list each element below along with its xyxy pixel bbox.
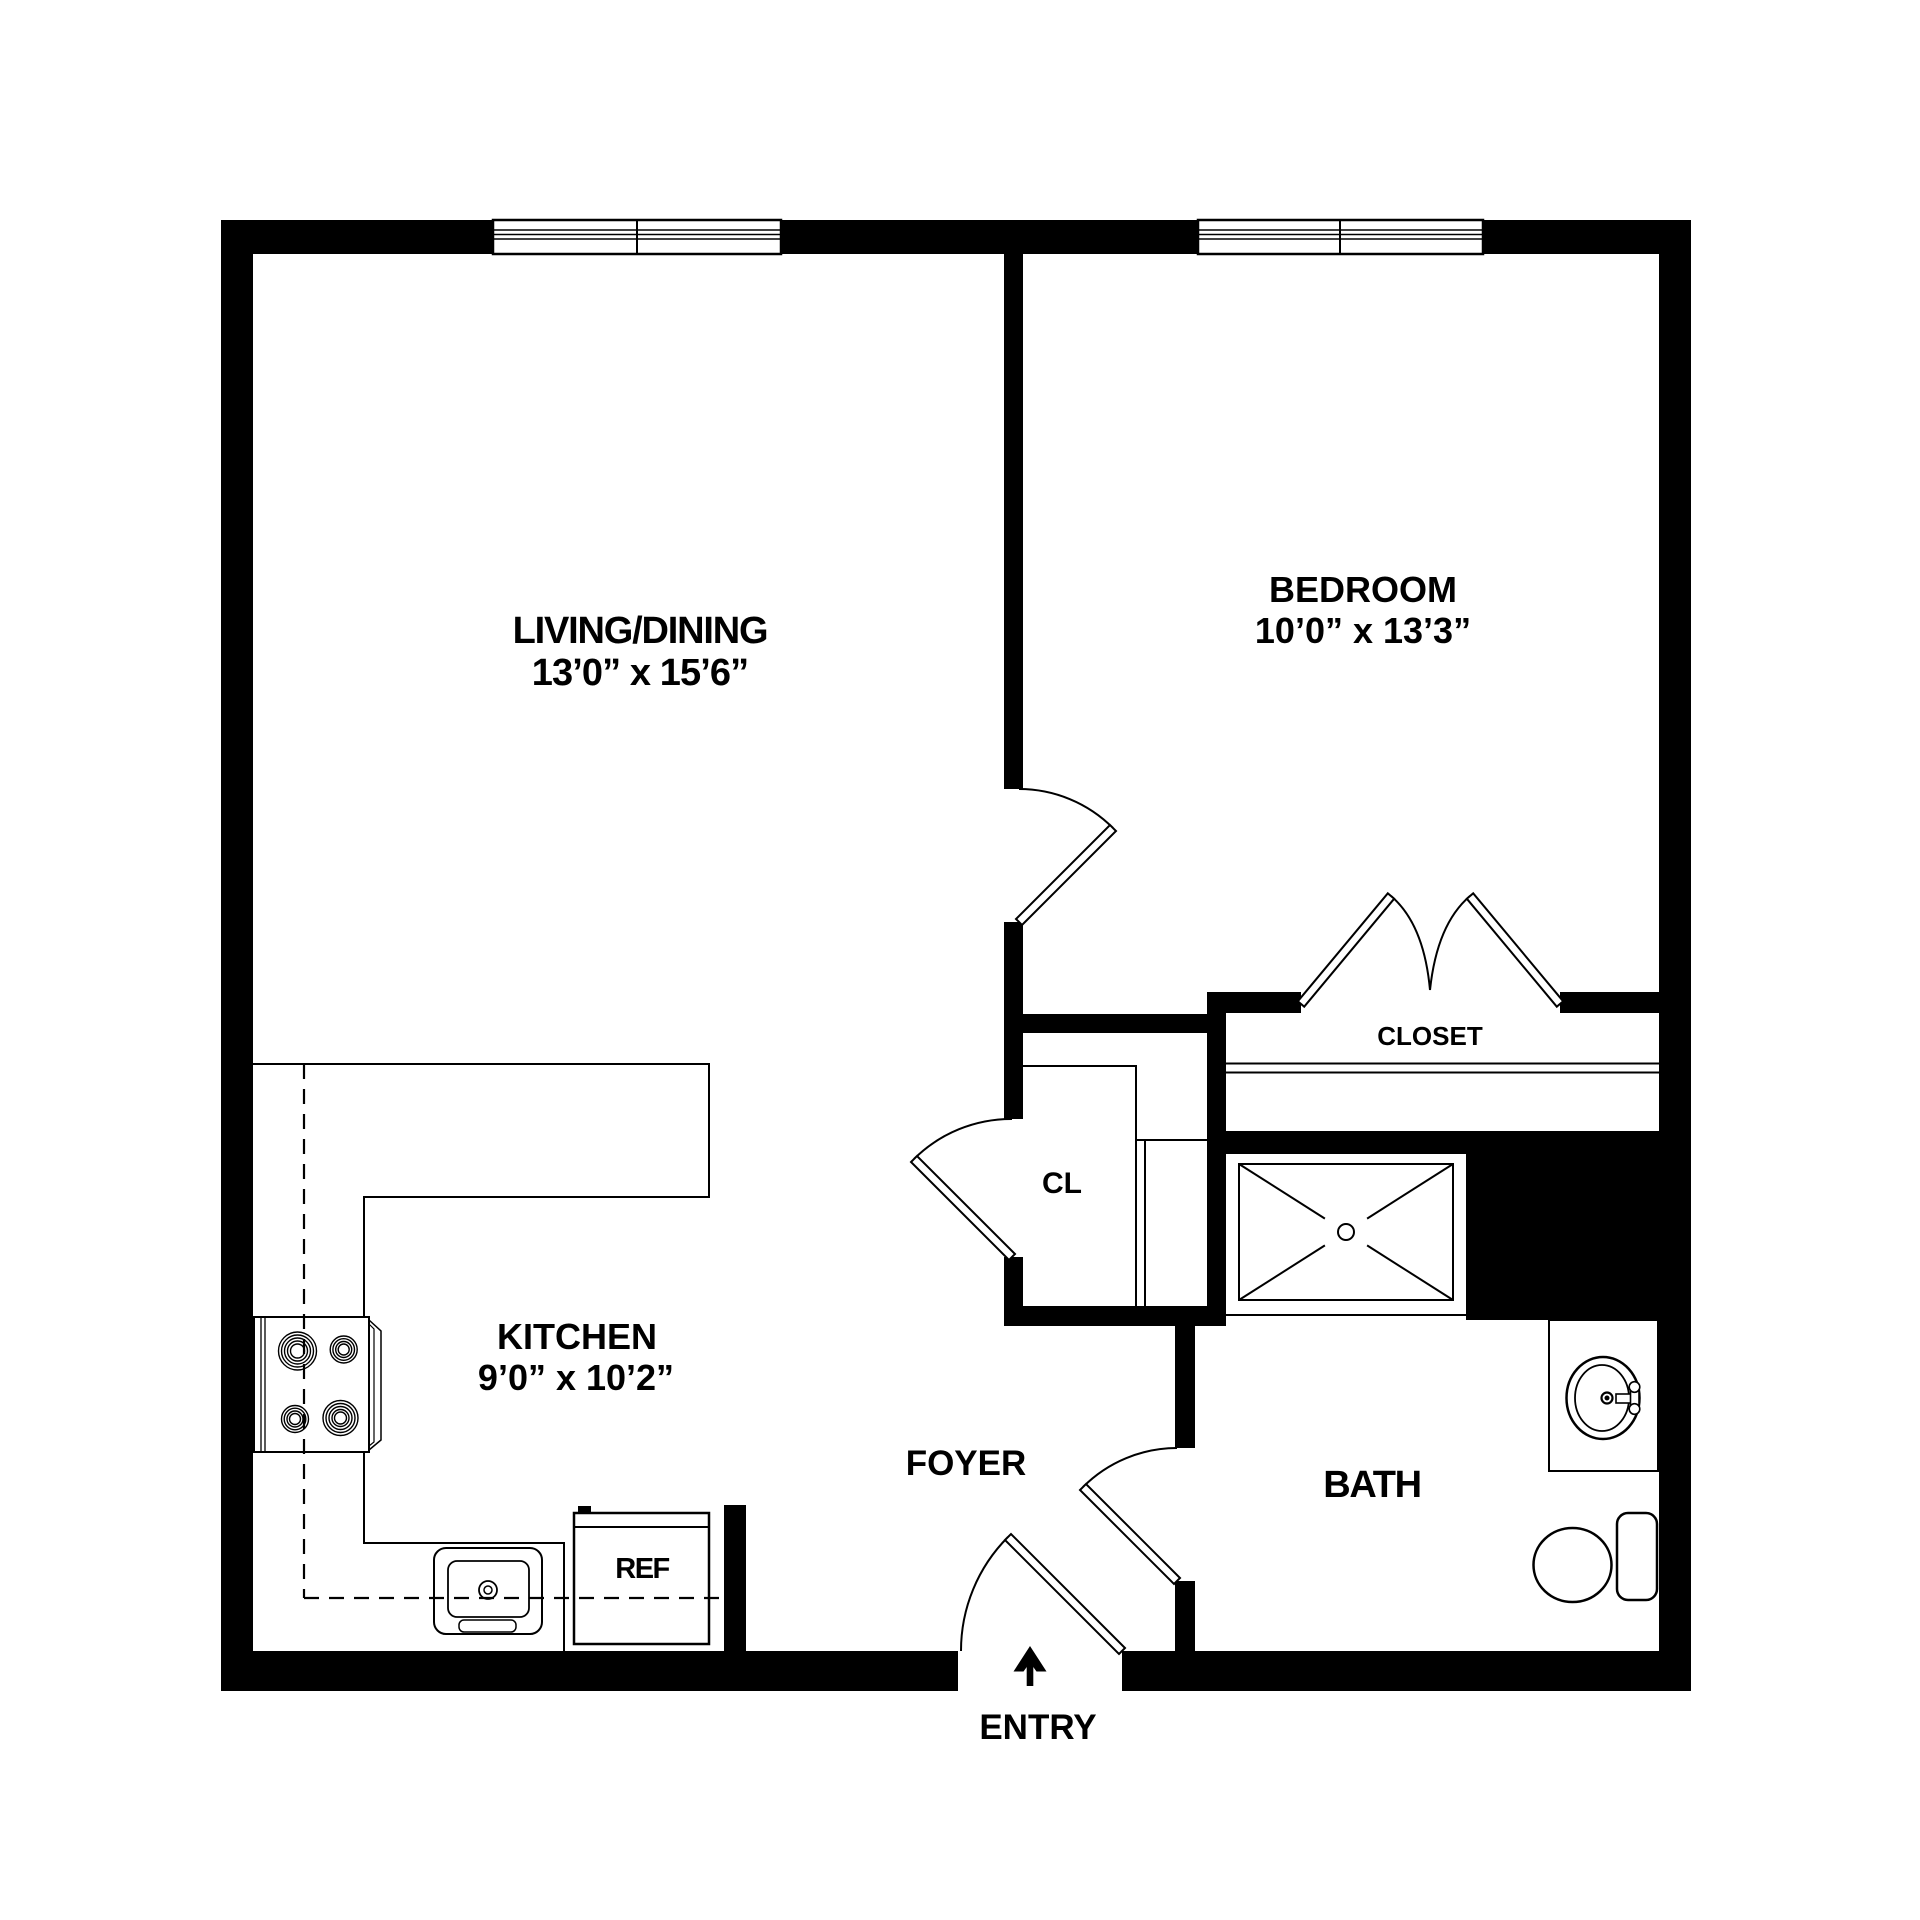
svg-text:ENTRY: ENTRY xyxy=(979,1708,1096,1747)
svg-text:FOYER: FOYER xyxy=(906,1444,1027,1483)
svg-text:BEDROOM: BEDROOM xyxy=(1269,569,1457,610)
svg-text:CLOSET: CLOSET xyxy=(1377,1021,1483,1051)
svg-text:BATH: BATH xyxy=(1323,1464,1421,1506)
svg-text:10’0” x 13’3”: 10’0” x 13’3” xyxy=(1255,610,1471,651)
svg-text:CL: CL xyxy=(1042,1167,1082,1200)
svg-text:13’0” x 15’6”: 13’0” x 15’6” xyxy=(532,652,748,694)
svg-text:LIVING/DINING: LIVING/DINING xyxy=(513,610,768,652)
svg-text:KITCHEN: KITCHEN xyxy=(497,1316,657,1357)
svg-text:9’0” x 10’2”: 9’0” x 10’2” xyxy=(478,1357,674,1398)
svg-text:REF: REF xyxy=(615,1553,669,1585)
